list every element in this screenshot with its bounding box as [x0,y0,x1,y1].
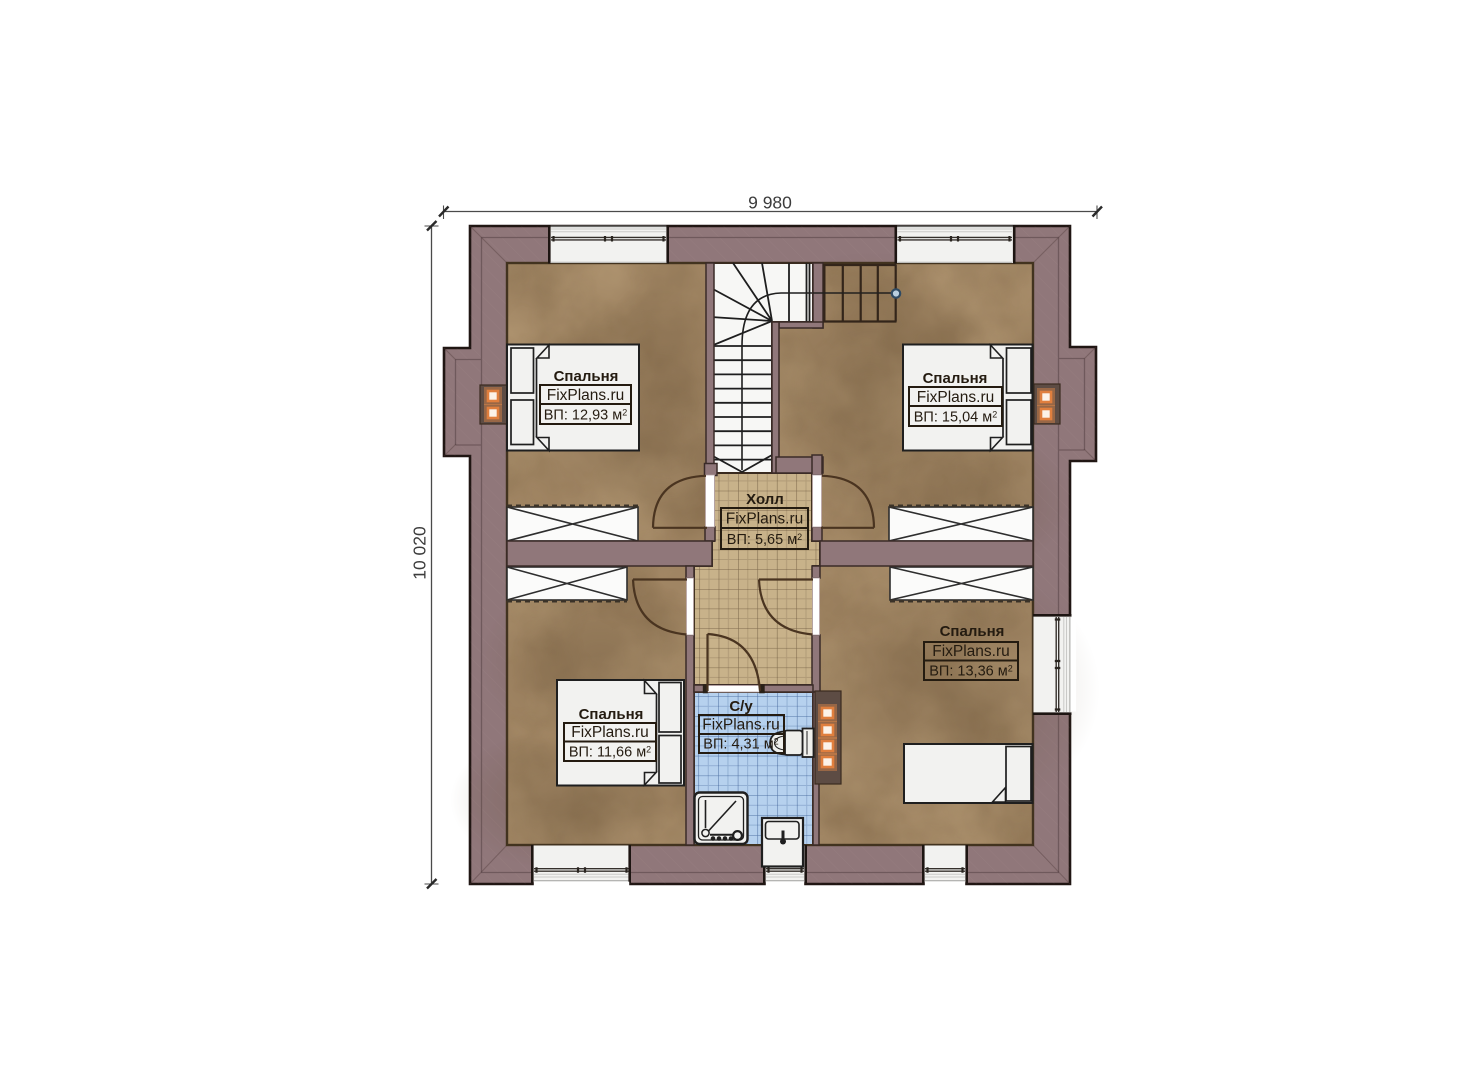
svg-text:FixPlans.ru: FixPlans.ru [917,389,995,406]
svg-text:Спальня: Спальня [579,706,644,723]
svg-text:ВП: 15,04 м2: ВП: 15,04 м2 [914,410,997,426]
svg-text:FixPlans.ru: FixPlans.ru [571,724,649,741]
svg-text:ВП: 4,31 м2: ВП: 4,31 м2 [703,737,778,753]
svg-text:Спальня: Спальня [554,368,619,385]
svg-text:FixPlans.ru: FixPlans.ru [547,387,625,404]
svg-text:ВП: 11,66 м2: ВП: 11,66 м2 [569,745,651,761]
svg-text:10 020: 10 020 [410,526,430,580]
svg-text:ВП: 13,36 м2: ВП: 13,36 м2 [929,664,1012,680]
svg-text:С/у: С/у [729,698,753,715]
svg-text:ВП: 12,93 м2: ВП: 12,93 м2 [544,408,627,424]
svg-text:Спальня: Спальня [940,623,1005,640]
svg-text:Холл: Холл [746,491,784,508]
svg-text:ВП: 5,65 м2: ВП: 5,65 м2 [727,532,802,548]
svg-text:FixPlans.ru: FixPlans.ru [726,511,804,528]
svg-text:FixPlans.ru: FixPlans.ru [702,717,780,734]
svg-text:Спальня: Спальня [923,370,988,387]
svg-text:FixPlans.ru: FixPlans.ru [932,643,1010,660]
svg-text:9 980: 9 980 [748,193,792,213]
